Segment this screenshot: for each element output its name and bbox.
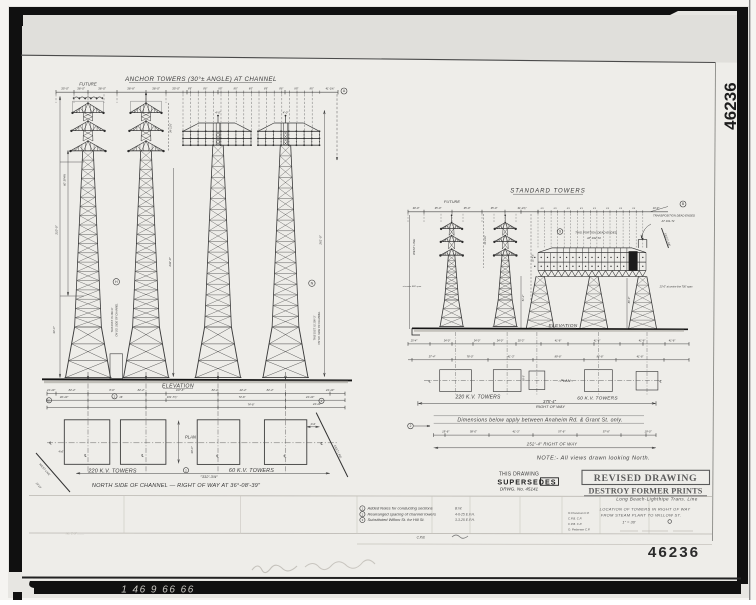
svg-text:36'-0": 36'-0": [98, 87, 107, 91]
svg-text:220 K.V. TOWERS: 220 K.V. TOWERS: [87, 468, 137, 474]
svg-text:35'-0": 35'-0": [491, 206, 499, 210]
svg-text:THIS DIST. IS 198'-3": THIS DIST. IS 198'-3": [312, 314, 316, 340]
svg-text:NORTH SIDE OF CHANNEL — R: NORTH SIDE OF CHANNEL — RIGHT OF WAY AT …: [92, 483, 261, 489]
svg-text:57'-6": 57'-6": [603, 430, 611, 434]
svg-text:AT 192-T2: AT 192-T2: [586, 236, 601, 240]
svg-text:84'-4": 84'-4": [138, 388, 146, 392]
svg-text:C.P.B. C.P.: C.P.B. C.P.: [568, 522, 582, 526]
svg-text:24'-10": 24'-10": [305, 395, 315, 399]
svg-text:8'6": 8'6": [234, 87, 238, 90]
svg-text:℄: ℄: [215, 454, 219, 459]
svg-text:B.W.: B.W.: [455, 507, 462, 511]
svg-text:at centre 900' span: at centre 900' span: [403, 285, 422, 288]
svg-text:C.P.B.: C.P.B.: [417, 535, 426, 539]
svg-text:30'-3": 30'-3": [518, 338, 526, 342]
svg-text:TRANSPOSITION DEAD ENDED: TRANSPOSITION DEAD ENDED: [653, 213, 695, 217]
svg-text:8'6": 8'6": [218, 87, 222, 90]
svg-text:210'-0": 210'-0": [55, 224, 59, 235]
svg-text:25'-4": 25'-4": [410, 338, 419, 342]
svg-text:41'-3": 41'-3": [508, 354, 516, 358]
svg-text:35'-0": 35'-0": [172, 87, 181, 91]
svg-text:58'-0": 58'-0": [470, 430, 478, 434]
svg-text:80'-0": 80'-0": [628, 297, 631, 303]
svg-text:C.P.B. C.P.: C.P.B. C.P.: [568, 517, 582, 521]
svg-text:Rearranged spacing of channel: Rearranged spacing of channel towers: [368, 511, 437, 516]
svg-text:30'-0": 30'-0": [413, 206, 421, 210]
svg-text:ANCHOR TOWERS (30°± ANGLE): ANCHOR TOWERS (30°± ANGLE) AT CHANNEL: [124, 76, 277, 83]
svg-text:37'-4": 37'-4": [429, 354, 437, 358]
svg-text:″332'-3⅞″: ″332'-3⅞″: [200, 474, 218, 479]
svg-text:ELEVATION: ELEVATION: [548, 323, 577, 329]
svg-text:242'-0": 242'-0": [168, 256, 172, 267]
svg-text:Added Notes for conducting sec: Added Notes for conducting sections: [367, 506, 433, 511]
svg-text:181'-7⅞": 181'-7⅞": [167, 395, 179, 399]
svg-text:19'-0": 19'-0": [644, 430, 652, 434]
svg-text:41'-6": 41'-6": [639, 338, 647, 342]
svg-text:39'-0": 39'-0": [190, 445, 194, 453]
svg-text:41'-1⅝": 41'-1⅝": [326, 86, 336, 90]
svg-text:3-3-25 E.F.H.: 3-3-25 E.F.H.: [455, 518, 475, 522]
svg-text:Long Beach-Lighthipe Trans. Li: Long Beach-Lighthipe Trans. Line: [616, 497, 697, 502]
svg-text:LOCATION OF TOWERS IN RIGHT OF: LOCATION OF TOWERS IN RIGHT OF WAY: [600, 507, 691, 512]
svg-text:4'x4': 4'x4': [311, 423, 317, 426]
svg-text:39'-0": 39'-0": [524, 375, 526, 381]
svg-text:H: H: [115, 280, 118, 284]
svg-text:AT 191-T2: AT 191-T2: [660, 219, 674, 223]
svg-text:Dimensions below apply betwee: Dimensions below apply between Anaheim R…: [457, 417, 622, 423]
svg-text:36'-6": 36'-6": [127, 87, 136, 91]
svg-text:1" = 30': 1" = 30': [622, 519, 636, 524]
svg-text:8'6": 8'6": [310, 87, 314, 90]
svg-text:DESTROY FORMER PRINTS: DESTROY FORMER PRINTS: [589, 487, 703, 496]
svg-text:24'-10": 24'-10": [46, 388, 56, 392]
svg-text:O. Pedersen C.P.: O. Pedersen C.P.: [568, 527, 590, 531]
svg-text:℄: ℄: [283, 454, 287, 459]
svg-text:78'-0": 78'-0": [467, 354, 475, 358]
svg-text:24'-10": 24'-10": [325, 388, 335, 392]
svg-text:- PLAN -: - PLAN -: [558, 379, 573, 383]
svg-text:8'6": 8'6": [249, 87, 253, 90]
svg-text:31'-4⅞": 31'-4⅞": [532, 254, 535, 262]
svg-text:36'-0": 36'-0": [77, 87, 86, 91]
svg-text:NOTE:- All views drawn lookin: NOTE:- All views drawn looking North.: [537, 456, 650, 462]
svg-text:8'6": 8'6": [188, 87, 192, 90]
svg-text:1 46 9 66 66: 1 46 9 66 66: [121, 585, 195, 596]
svg-text:41'-6": 41'-6": [555, 338, 563, 342]
svg-text:34'-11¼": 34'-11¼": [170, 123, 173, 133]
svg-text:34'-0": 34'-0": [497, 338, 505, 342]
svg-text:℄: ℄: [48, 440, 52, 445]
svg-text:220 K.V. TOWERS: 220 K.V. TOWERS: [454, 395, 501, 401]
svg-text:DRWG. No. 45141: DRWG. No. 45141: [500, 487, 539, 492]
svg-text:60 K.V. TOWERS: 60 K.V. TOWERS: [229, 468, 274, 474]
svg-text:FROM STEAM PLANT TO WILLOW ST.: FROM STEAM PLANT TO WILLOW ST.: [601, 513, 682, 518]
svg-text:74'-6": 74'-6": [248, 402, 256, 406]
svg-text:89'-6": 89'-6": [555, 354, 563, 358]
svg-text:24'-4": 24'-4": [239, 388, 248, 392]
svg-text:57'-6": 57'-6": [558, 430, 566, 434]
svg-text:no. 1 of ____: no. 1 of ____: [66, 532, 85, 536]
svg-text:41'-6": 41'-6": [637, 354, 645, 358]
svg-text:2: 2: [410, 424, 412, 428]
svg-text:41'-6": 41'-6": [669, 338, 677, 342]
svg-text:84'-4": 84'-4": [69, 388, 77, 392]
svg-text:84'-4": 84'-4": [212, 388, 220, 392]
svg-text:60' SPAN: 60' SPAN: [63, 173, 67, 186]
svg-text:4'x6': 4'x6': [59, 451, 65, 454]
svg-text:30'-0": 30'-0": [52, 325, 56, 333]
svg-text:317'-8": 317'-8": [176, 388, 185, 392]
svg-text:82'-6": 82'-6": [597, 354, 605, 358]
svg-text:34'-0": 34'-0": [444, 338, 452, 342]
svg-text:35'-0": 35'-0": [435, 206, 443, 210]
svg-text:51'-2": 51'-2": [522, 295, 525, 301]
svg-text:35'-0": 35'-0": [61, 87, 70, 91]
svg-text:36'-0": 36'-0": [152, 87, 161, 91]
svg-text:46'-10": 46'-10": [60, 395, 69, 399]
svg-text:19'-6": 19'-6": [442, 430, 450, 434]
svg-text:PLAN: PLAN: [185, 434, 197, 439]
svg-text:252'-4" RIGHT OF WAY: 252'-4" RIGHT OF WAY: [526, 441, 578, 446]
svg-text:46236: 46236: [648, 544, 700, 561]
svg-text:℄: ℄: [83, 453, 87, 458]
svg-text:41'-6": 41'-6": [594, 338, 602, 342]
svg-text:THIS DIST. IS 160'-0": THIS DIST. IS 160'-0": [110, 306, 114, 332]
svg-text:16': 16': [119, 395, 123, 399]
svg-text:REVISED DRAWING: REVISED DRAWING: [594, 473, 697, 484]
svg-text:ON SO. SIDE OF CHANNEL: ON SO. SIDE OF CHANNEL: [115, 303, 119, 337]
svg-text:4-6-25 E.F.H.: 4-6-25 E.F.H.: [455, 512, 475, 516]
svg-text:N: N: [311, 282, 314, 286]
svg-text:35'-0": 35'-0": [464, 206, 472, 210]
svg-text:℄: ℄: [320, 441, 324, 446]
svg-text:24'-10": 24'-10": [312, 402, 322, 406]
svg-text:℄: ℄: [140, 453, 144, 458]
svg-text:41'-3": 41'-3": [512, 430, 520, 434]
svg-text:STANDARD TOWERS: STANDARD TOWERS: [510, 189, 585, 195]
svg-text:60 K.V. TOWERS: 60 K.V. TOWERS: [577, 396, 618, 402]
svg-text:Substituted Willow St. for Hil: Substituted Willow St. for Hill St.: [368, 517, 425, 522]
svg-text:8'6": 8'6": [203, 87, 207, 90]
svg-text:WEST LINE: WEST LINE: [412, 238, 416, 255]
svg-text:O.Chusman C.P.: O.Chusman C.P.: [568, 511, 590, 515]
svg-text:74'-6": 74'-6": [239, 395, 247, 399]
svg-text:34'-11¼": 34'-11¼": [484, 235, 487, 244]
svg-text:8'6": 8'6": [294, 87, 298, 90]
svg-text:23'-0" at centre line 700' spa: 23'-0" at centre line 700' span: [659, 285, 693, 288]
svg-text:34'-0": 34'-0": [474, 338, 482, 342]
svg-text:46236: 46236: [721, 82, 740, 130]
svg-text:84'-4": 84'-4": [267, 388, 275, 392]
svg-text:8'6": 8'6": [264, 87, 268, 90]
svg-text:31'-4⅞": 31'-4⅞": [517, 206, 527, 210]
svg-text:RIGHT OF WAY: RIGHT OF WAY: [536, 404, 565, 409]
svg-text:ON SO. SIDE OF CHANNEL: ON SO. SIDE OF CHANNEL: [317, 311, 321, 345]
svg-text:8'6": 8'6": [279, 87, 283, 90]
svg-text:THIS PORTION DEAD ENDED: THIS PORTION DEAD ENDED: [575, 231, 618, 235]
svg-text:FUTURE: FUTURE: [444, 199, 461, 204]
svg-text:261'-0": 261'-0": [319, 234, 323, 245]
